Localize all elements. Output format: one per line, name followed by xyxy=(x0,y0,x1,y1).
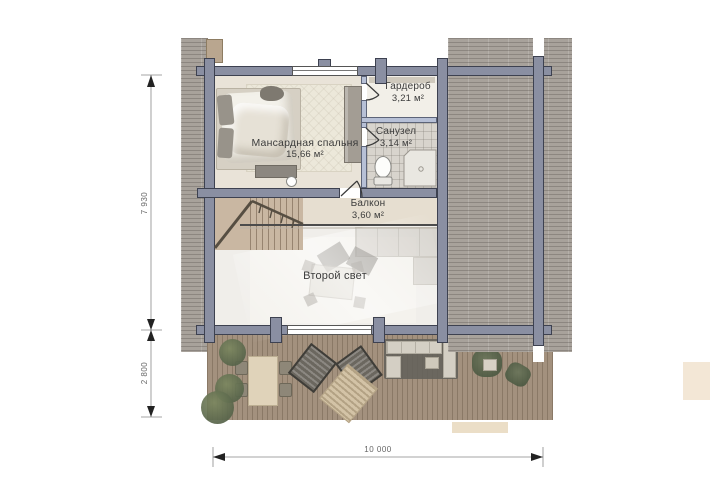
wardrobe-label: Гардероб 3,21 м² xyxy=(374,81,442,105)
terrace-sofa-back xyxy=(386,341,442,354)
side-porch xyxy=(683,362,710,400)
roof-gap xyxy=(533,38,544,57)
dimension-bottom-label: 10 000 xyxy=(364,445,392,454)
partition-vertical xyxy=(361,76,367,84)
bedroom-name: Мансардная спальня xyxy=(240,137,370,149)
wall-top xyxy=(196,66,552,76)
wall-left xyxy=(204,58,215,343)
dimension-bottom-arrows xyxy=(213,453,543,461)
bathroom-name: Санузел xyxy=(366,126,426,138)
partition-horizontal xyxy=(361,117,437,123)
terrace-sofa-side xyxy=(386,356,401,378)
floor-plan: 7 930 2 800 10 000 Мансардная спальня 15… xyxy=(0,0,710,502)
balcony-area: 3,60 м² xyxy=(330,210,406,222)
dimension-left xyxy=(141,75,162,417)
wall-middle-right xyxy=(360,188,437,198)
bathroom-label: Санузел 3,14 м² xyxy=(366,126,426,150)
bathroom-area: 3,14 м² xyxy=(366,138,426,150)
ceiling-light xyxy=(286,176,297,187)
wardrobe-area: 3,21 м² xyxy=(374,93,442,105)
wardrobe-name: Гардероб xyxy=(374,81,442,93)
balcony-label: Балкон 3,60 м² xyxy=(330,198,406,222)
wall-gable-right xyxy=(533,56,544,346)
log-post xyxy=(373,317,385,343)
partition-vertical xyxy=(361,100,367,128)
stair-treads xyxy=(250,198,303,250)
balcony-name: Балкон xyxy=(330,198,406,210)
terrace-bush xyxy=(219,339,246,366)
stair-landing xyxy=(214,198,250,250)
log-post xyxy=(270,317,282,343)
roof-right-slope xyxy=(448,38,572,352)
terrace-side-table xyxy=(425,357,439,369)
dimension-left-lower-label: 2 800 xyxy=(140,362,149,385)
plant-table xyxy=(483,359,497,371)
bedroom-label: Мансардная спальня 15,66 м² xyxy=(240,137,370,161)
terrace-tree xyxy=(201,391,234,424)
dimension-bottom xyxy=(213,447,543,467)
window-top xyxy=(292,66,358,76)
terrace-chair xyxy=(279,383,292,397)
roof-gap xyxy=(533,346,544,362)
pillow xyxy=(217,128,234,159)
second-light-label: Второй свет xyxy=(288,270,382,282)
dimension-left-arrows xyxy=(147,75,155,417)
dimension-left-upper-label: 7 930 xyxy=(140,192,149,215)
second-light-name: Второй свет xyxy=(288,270,382,282)
garden-step xyxy=(452,422,508,433)
terrace-dining-table xyxy=(248,356,278,406)
bedroom-area: 15,66 м² xyxy=(240,149,370,161)
wall-middle-left xyxy=(197,188,340,198)
window-bottom xyxy=(287,325,372,335)
bedroom-plant xyxy=(260,86,284,101)
pillow xyxy=(216,94,234,125)
